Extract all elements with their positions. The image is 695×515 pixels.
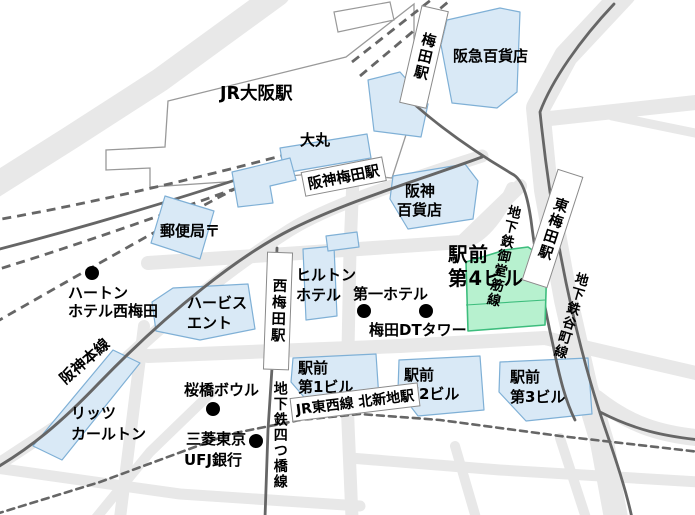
label-hearton-2: ホテル西梅田	[68, 302, 158, 320]
label-ritz-2: カールトン	[71, 425, 146, 443]
label-hearton-1: ハートン	[68, 284, 128, 302]
road-east-2	[612, 116, 695, 134]
road-southwest-1	[0, 468, 360, 506]
building-hilton-annex	[326, 232, 359, 251]
label-sakurabashi-bowl: 桜橋ボウル	[184, 381, 259, 399]
label-post-office: 郵便局〒	[160, 222, 220, 240]
label-yotsubashi-line: 地下鉄四つ橋線	[271, 381, 288, 490]
label-daimaru: 大丸	[300, 131, 330, 149]
marker-sakurabashi-bowl	[206, 402, 220, 416]
road-south-vertical-1	[455, 446, 476, 515]
label-mufg-1: 三菱東京	[186, 430, 246, 448]
label-daiichi-hotel: 第一ホテル	[353, 285, 428, 303]
label-ekimae-3-line2: 第3ビル	[510, 388, 565, 406]
label-hanshin-dept-2: 百貨店	[397, 201, 442, 219]
marker-umeda-dt-tower	[419, 304, 433, 318]
marker-daiichi-hotel	[357, 304, 371, 318]
label-ekimae-4-line1: 駅前	[448, 243, 489, 266]
label-herbis-2: エント	[187, 314, 232, 332]
label-ekimae-2-line1: 駅前	[404, 366, 434, 384]
road-south-horizontal	[350, 458, 695, 482]
label-ekimae-3-line1: 駅前	[510, 368, 540, 386]
umeda-area-map: JR大阪駅 阪急百貨店 大丸 郵便局〒 阪神 百貨店 ハートン ホテル西梅田 ヒ…	[0, 0, 695, 515]
label-ritz-1: リッツ	[71, 404, 116, 422]
label-hankyu-dept: 阪急百貨店	[453, 47, 528, 65]
marker-mufg-bank	[249, 434, 263, 448]
label-hilton-2: ホテル	[296, 286, 341, 304]
label-jr-osaka-station: JR大阪駅	[220, 84, 293, 105]
label-herbis-1: ハービス	[187, 294, 247, 312]
marker-hearton-hotel	[85, 266, 99, 280]
label-hanshin-dept-1: 阪神	[405, 182, 435, 200]
label-mufg-2: UFJ銀行	[184, 451, 242, 469]
nishi-umeda-station-box: 西梅田駅	[263, 252, 293, 371]
label-nishi-umeda-station: 西梅田駅	[266, 278, 289, 345]
label-ekimae-1-line1: 駅前	[298, 359, 328, 377]
label-hilton-1: ヒルトン	[296, 266, 356, 284]
label-umeda-dt-tower: 梅田DTタワー	[369, 321, 467, 339]
